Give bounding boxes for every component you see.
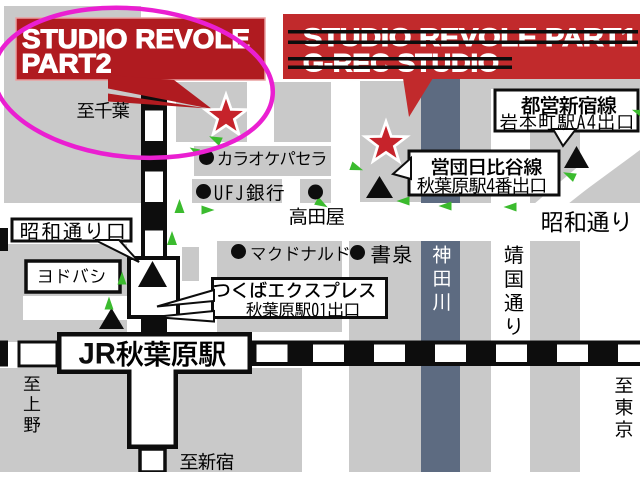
svg-text:STUDIO REVOLE PART1: STUDIO REVOLE PART1 (303, 24, 637, 52)
svg-text:JR: JR (79, 338, 117, 371)
svg-text:G-REC STUDIO: G-REC STUDIO (303, 50, 499, 78)
svg-text:PART2: PART2 (22, 49, 112, 79)
